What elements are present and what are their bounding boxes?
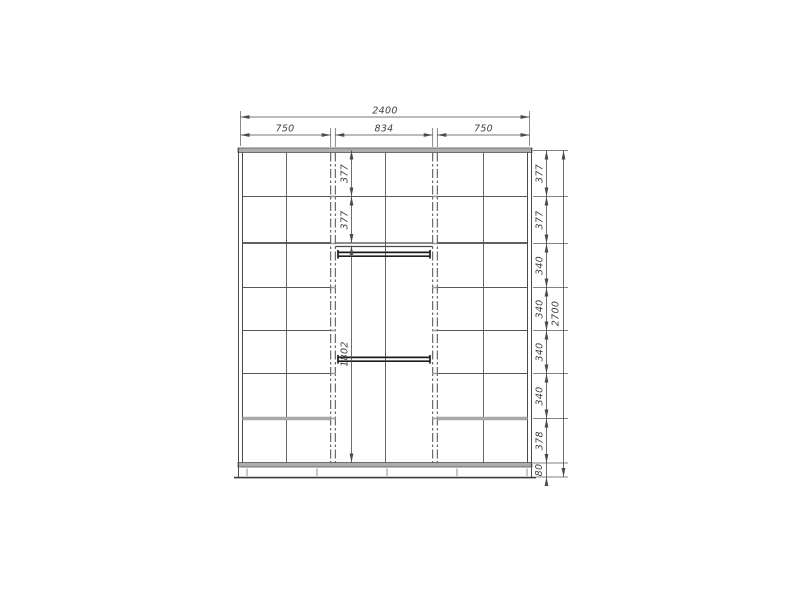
right-height-label-4: 340	[535, 299, 546, 318]
bottom-shelf	[238, 463, 532, 468]
left-wall	[239, 148, 243, 477]
right-height-label-3: 340	[535, 256, 546, 275]
middle-shelf-2	[335, 243, 432, 247]
section-width-label-right: 750	[474, 124, 493, 135]
right-height-label-1: 377	[535, 164, 546, 183]
right-wall	[528, 148, 532, 477]
right-height-label-2: 377	[535, 210, 546, 229]
wardrobe-body	[234, 148, 536, 478]
section-width-label-middle: 834	[374, 124, 393, 135]
section-width-label-left: 750	[275, 124, 294, 135]
middle-height-label-2: 377	[340, 210, 351, 229]
feet-ticks	[247, 469, 527, 477]
section-divider-left	[331, 153, 336, 463]
dimensions-right: 377 377 340 340 340 340 378 80 2700	[533, 151, 568, 487]
right-height-label-5: 340	[535, 342, 546, 361]
section-divider-right	[433, 153, 438, 463]
dimensions-top: 2400 750 834 750	[241, 106, 530, 148]
middle-height-label-1: 377	[340, 164, 351, 183]
overall-height-label: 2700	[551, 301, 562, 326]
wardrobe-technical-drawing: 2400 750 834 750 377 377 340 340 340 340…	[0, 0, 800, 600]
overall-width-label: 2400	[372, 106, 397, 117]
right-height-label-7: 378	[535, 431, 546, 450]
drawing-page: 2400 750 834 750 377 377 340 340 340 340…	[0, 0, 800, 600]
dimensions-middle: 377 377 1802	[340, 151, 352, 463]
right-height-label-6: 340	[535, 386, 546, 405]
right-shelves	[437, 197, 527, 374]
top-panel	[238, 148, 532, 153]
middle-height-label-3: 1802	[340, 341, 351, 366]
right-height-label-8: 80	[534, 464, 545, 477]
